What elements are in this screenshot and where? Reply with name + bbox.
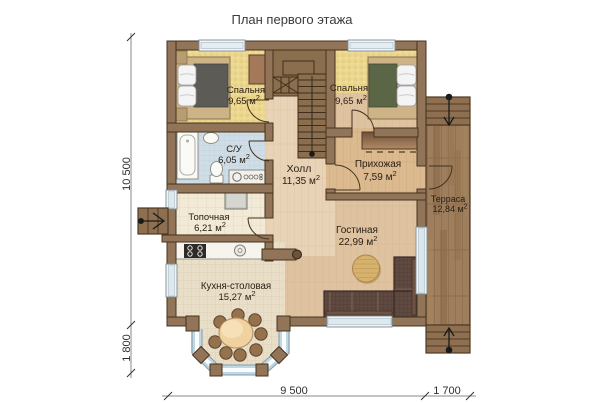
svg-text:9,65 м2: 9,65 м2: [228, 93, 260, 107]
svg-text:1 800: 1 800: [121, 334, 133, 362]
svg-text:План первого этажа: План первого этажа: [231, 12, 353, 27]
svg-text:7,59 м2: 7,59 м2: [363, 169, 396, 183]
svg-text:Холл: Холл: [287, 163, 312, 175]
svg-text:12,84 м2: 12,84 м2: [432, 204, 467, 215]
svg-text:1 700: 1 700: [433, 385, 461, 397]
svg-text:С/У: С/У: [226, 144, 243, 155]
svg-text:Гостиная: Гостиная: [336, 225, 378, 236]
svg-text:Терраса: Терраса: [431, 194, 466, 204]
svg-text:9,65 м2: 9,65 м2: [335, 93, 367, 107]
svg-text:6,05 м2: 6,05 м2: [218, 152, 250, 166]
svg-text:22,99 м2: 22,99 м2: [339, 234, 378, 248]
svg-text:11,35 м2: 11,35 м2: [282, 173, 320, 187]
svg-text:Кухня-столовая: Кухня-столовая: [201, 281, 271, 292]
svg-text:15,27 м2: 15,27 м2: [218, 289, 255, 303]
svg-text:6,21 м2: 6,21 м2: [194, 220, 226, 234]
svg-text:9 500: 9 500: [280, 385, 308, 397]
svg-text:10 500: 10 500: [121, 157, 133, 191]
